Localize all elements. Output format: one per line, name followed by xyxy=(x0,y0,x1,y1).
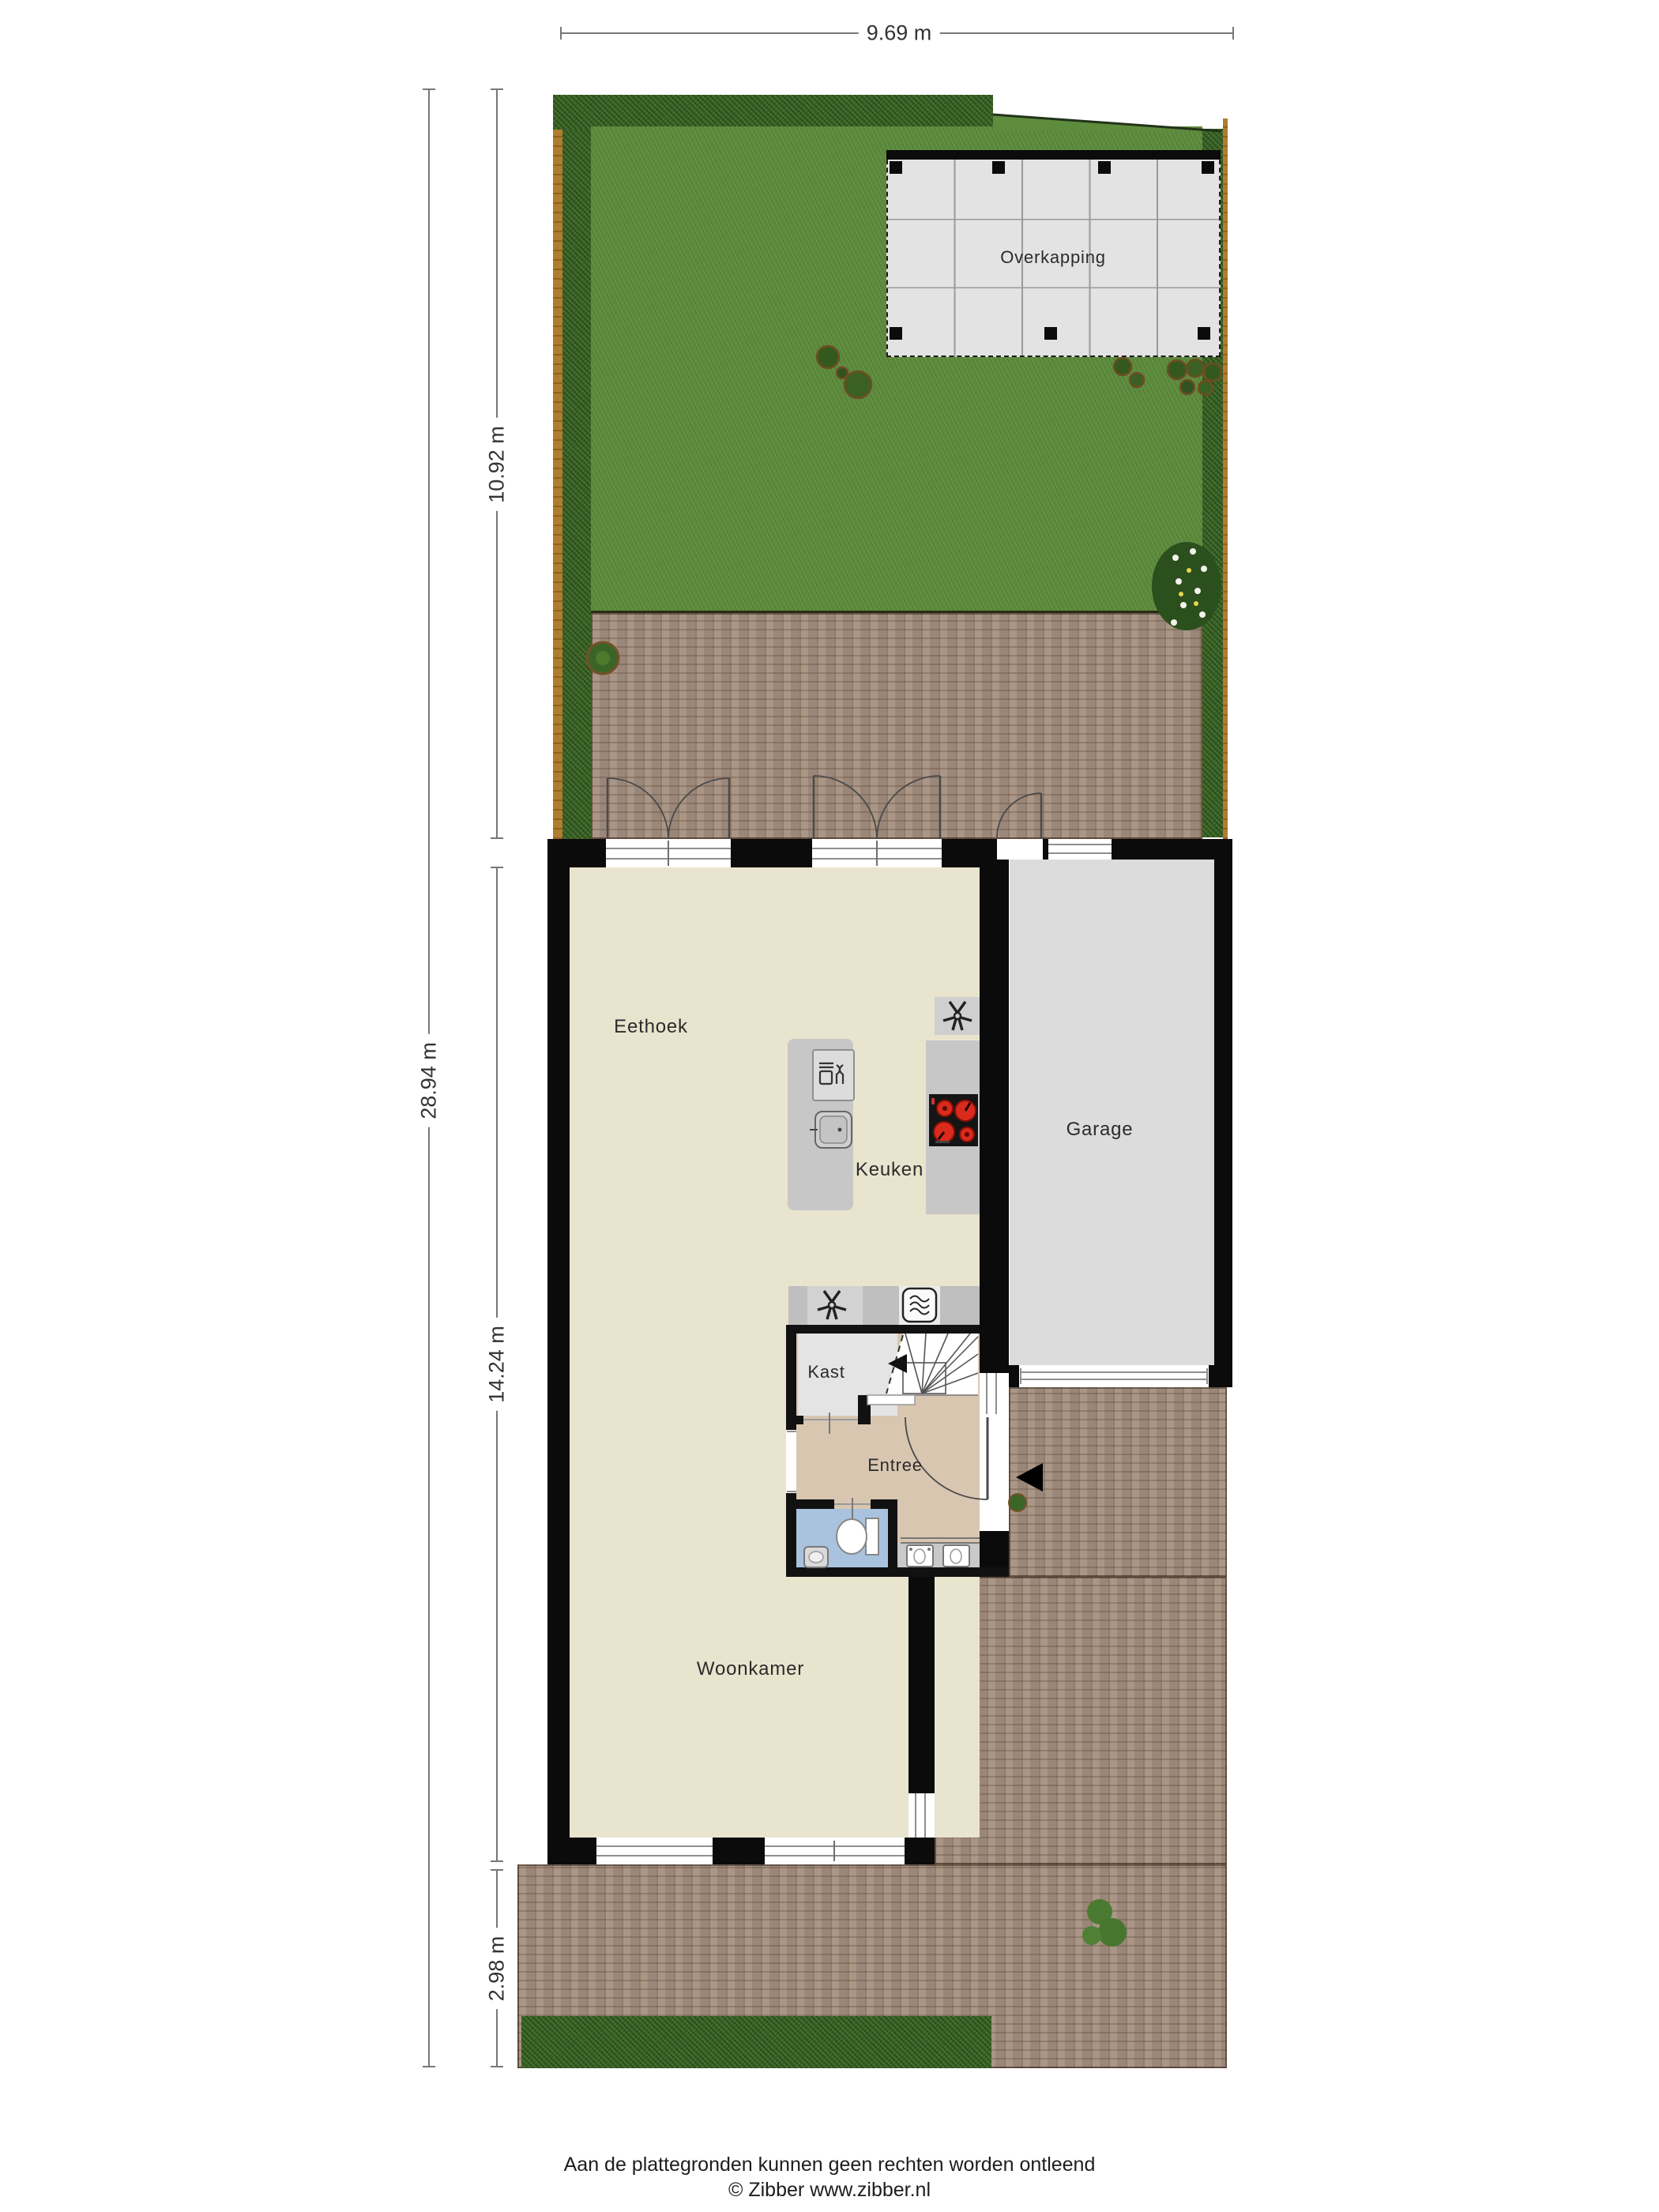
dim-tick xyxy=(491,1869,503,1871)
dim-tick xyxy=(491,1860,503,1862)
lawn-bushes xyxy=(817,346,1221,398)
dim-label-garden-depth: 10.92 m xyxy=(483,418,511,511)
room-label-woonkamer: Woonkamer xyxy=(697,1658,804,1680)
footer-disclaimer: Aan de plattegronden kunnen geen rechten… xyxy=(0,2154,1659,2176)
plan-detail-overlay xyxy=(0,0,1659,2212)
interior-door-marks xyxy=(803,1413,980,1543)
dim-label-front-depth: 2.98 m xyxy=(483,1928,511,2010)
lawn-slope-edge xyxy=(993,114,1223,131)
basin-icon xyxy=(804,1547,828,1567)
room-label-kast: Kast xyxy=(807,1362,845,1382)
stairs xyxy=(867,1334,978,1405)
dim-tick xyxy=(423,88,435,90)
fan-icon xyxy=(943,1002,972,1030)
dim-label-house-depth: 14.24 m xyxy=(483,1318,511,1411)
room-label-eethoek: Eethoek xyxy=(614,1016,688,1038)
oven-icon xyxy=(903,1288,936,1322)
fan-icon xyxy=(818,1291,846,1319)
dim-tick xyxy=(491,88,503,90)
dim-tick xyxy=(560,27,562,39)
dim-label-total-depth: 28.94 m xyxy=(416,1034,443,1127)
room-label-overkapping: Overkapping xyxy=(1000,247,1106,268)
vanity-basin-icons xyxy=(907,1545,969,1567)
cooktop xyxy=(929,1094,978,1146)
flower-bed xyxy=(1152,542,1221,630)
room-label-garage: Garage xyxy=(1066,1119,1134,1141)
dim-tick xyxy=(491,867,503,868)
front-grass-tuft xyxy=(1082,1899,1127,1947)
dim-tick xyxy=(491,837,503,839)
floorplan-canvas: Overkapping Eethoek Keuken Garage Kast E… xyxy=(0,0,1659,2212)
dim-tick xyxy=(491,2066,503,2067)
room-label-entree: Entree xyxy=(867,1455,923,1476)
toilet-icon xyxy=(837,1518,878,1555)
dim-tick xyxy=(1232,27,1234,39)
dim-label-top-width: 9.69 m xyxy=(859,20,940,47)
entrance-bush xyxy=(1009,1494,1026,1511)
dim-tick xyxy=(423,2066,435,2067)
footer-credit: © Zibber www.zibber.nl xyxy=(0,2179,1659,2202)
entrance-arrow-icon xyxy=(1016,1463,1043,1492)
room-label-keuken: Keuken xyxy=(856,1159,924,1181)
dishwasher-icon xyxy=(819,1063,843,1084)
terrace-bush xyxy=(587,642,619,674)
sink-icon xyxy=(810,1112,852,1148)
